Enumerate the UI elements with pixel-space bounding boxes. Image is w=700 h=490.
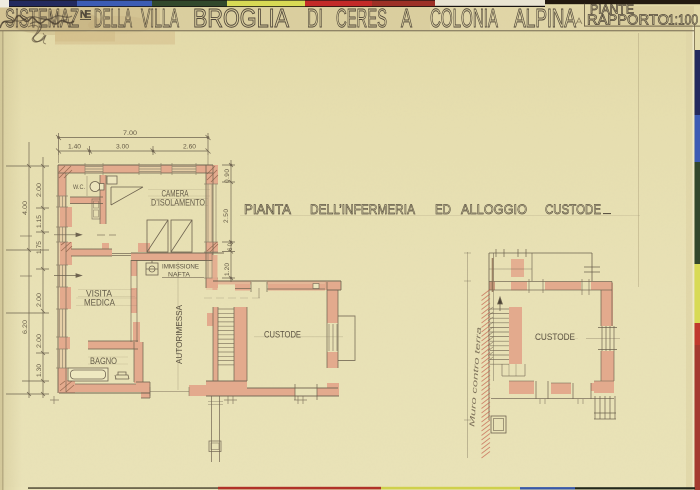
svg-text:DI: DI [307, 5, 323, 33]
svg-text:MEDICA: MEDICA [84, 298, 115, 308]
svg-text:ALPINA: ALPINA [514, 5, 576, 33]
svg-text:3.00: 3.00 [116, 144, 129, 151]
svg-text:COLONIA: COLONIA [430, 5, 498, 33]
svg-text:CUSTODE: CUSTODE [545, 201, 601, 217]
svg-text:6.20: 6.20 [22, 320, 29, 334]
svg-text:2.00: 2.00 [36, 183, 43, 197]
svg-text:BAGNO: BAGNO [90, 356, 117, 366]
svg-text:PIANTA: PIANTA [244, 201, 292, 217]
svg-text:VILLA: VILLA [141, 5, 179, 33]
svg-text:60: 60 [228, 242, 234, 251]
svg-text:AUTORIMESSA: AUTORIMESSA [174, 305, 184, 364]
svg-text:W.C.: W.C. [73, 184, 85, 191]
svg-text:BROGLIA: BROGLIA [193, 5, 289, 33]
svg-text:D’ISOLAMENTO: D’ISOLAMENTO [151, 198, 205, 208]
svg-text:ED: ED [435, 201, 451, 217]
svg-text:2.00: 2.00 [36, 334, 43, 348]
svg-text:7.00: 7.00 [123, 130, 137, 137]
svg-text:NE: NE [80, 10, 91, 21]
svg-text:ALLOGGIO: ALLOGGIO [461, 201, 527, 217]
svg-text:2.60: 2.60 [183, 144, 196, 151]
svg-text:CUSTODE: CUSTODE [264, 330, 301, 340]
svg-text:DELLA: DELLA [94, 5, 132, 33]
svg-text:A: A [401, 5, 412, 33]
svg-text:1.20: 1.20 [224, 263, 231, 276]
svg-text:0.90: 0.90 [224, 169, 231, 183]
svg-text:1.75: 1.75 [36, 241, 43, 254]
svg-text:1.30: 1.30 [36, 364, 43, 377]
svg-text:4.00: 4.00 [22, 201, 29, 215]
svg-text:NAFTA: NAFTA [168, 272, 191, 279]
svg-text:IMMISSIONE: IMMISSIONE [162, 264, 199, 271]
svg-text:2.50: 2.50 [223, 209, 230, 223]
svg-text:CUSTODE: CUSTODE [535, 332, 575, 342]
svg-text:1.40: 1.40 [68, 144, 81, 151]
svg-text:CERES: CERES [336, 5, 387, 33]
svg-text:DELL’INFERMERIA: DELL’INFERMERIA [310, 201, 416, 217]
svg-text:1.15: 1.15 [36, 215, 43, 228]
svg-text:2.00: 2.00 [36, 293, 43, 307]
